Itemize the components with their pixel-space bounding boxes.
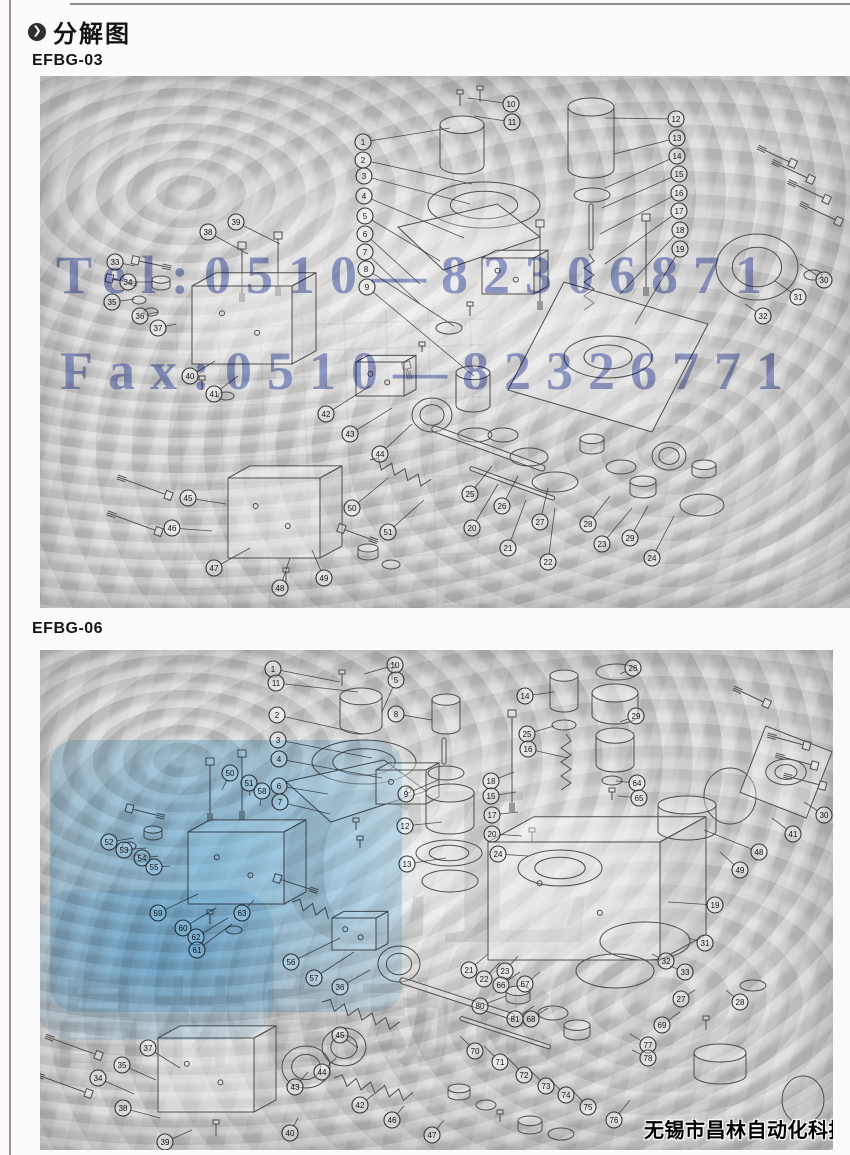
part-bolt [125,804,166,821]
svg-text:39: 39 [232,218,241,227]
part-ring [680,494,724,516]
callout-35: 35 [114,1057,156,1080]
svg-text:70: 70 [471,1047,480,1056]
svg-text:1: 1 [361,138,366,147]
part-bolt [732,684,772,708]
svg-text:64: 64 [633,779,642,788]
svg-text:68: 68 [527,1015,536,1024]
svg-text:13: 13 [673,134,682,143]
svg-text:43: 43 [291,1083,300,1092]
part-ring [552,720,576,730]
efbg-06-exploded-diagram: CL 昌林自动化 1112346710589121314251618151720… [40,650,833,1150]
callout-2: 2 [269,707,362,734]
svg-text:49: 49 [320,574,329,583]
svg-text:66: 66 [497,981,506,990]
callout-28: 28 [726,990,748,1010]
callout-73: 73 [530,1070,554,1094]
part-cyl [358,544,378,560]
svg-text:54: 54 [138,854,147,863]
company-name: 无锡市昌林自动化科技 [644,1114,833,1143]
page-title: 分解图 [53,14,131,49]
svg-text:42: 42 [322,410,331,419]
svg-text:48: 48 [755,848,764,857]
svg-text:32: 32 [662,957,671,966]
svg-text:58: 58 [258,787,267,796]
svg-text:7: 7 [278,798,283,807]
callout-26: 26 [620,660,641,676]
svg-text:22: 22 [544,558,553,567]
svg-text:71: 71 [496,1058,505,1067]
svg-text:22: 22 [480,975,489,984]
svg-text:33: 33 [681,968,690,977]
svg-text:45: 45 [184,494,193,503]
callout-18: 18 [483,772,514,789]
callout-12: 12 [605,111,684,127]
svg-text:11: 11 [272,679,281,688]
svg-text:4: 4 [362,192,367,201]
callout-36: 36 [332,970,370,995]
part-cyl [448,1084,470,1100]
svg-text:6: 6 [277,782,282,791]
svg-text:18: 18 [676,226,685,235]
callout-78: 78 [632,1050,656,1066]
part-shaft [442,738,446,764]
svg-text:80: 80 [476,1002,485,1011]
callout-69: 69 [654,1012,680,1033]
callout-10: 10 [468,96,519,112]
part-cyl [630,476,656,498]
svg-text:67: 67 [521,980,530,989]
part-ring [226,926,242,934]
part-screw [497,1110,503,1122]
callout-41: 41 [772,818,801,842]
callout-72: 72 [508,1058,532,1083]
model-label-efbg-06: EFBG-06 [32,620,103,638]
svg-text:73: 73 [542,1082,551,1091]
callout-33: 33 [670,964,693,980]
part-bolt [106,509,163,536]
part-cyl [550,670,578,712]
svg-text:50: 50 [226,769,235,778]
svg-text:16: 16 [675,189,684,198]
svg-text:12: 12 [401,822,410,831]
svg-text:43: 43 [346,430,355,439]
callout-74: 74 [550,1080,574,1103]
svg-text:23: 23 [598,540,607,549]
callout-10: 10 [364,657,403,674]
svg-text:46: 46 [388,1116,397,1125]
svg-text:48: 48 [276,584,285,593]
callout-2: 2 [355,152,472,184]
callout-38: 38 [115,1100,160,1118]
part-screw [457,90,463,106]
part-bolt [508,710,516,812]
callout-46: 46 [164,520,212,536]
part-ring [476,1100,496,1110]
part-screw [353,818,359,830]
svg-text:29: 29 [626,534,635,543]
svg-text:51: 51 [245,779,254,788]
svg-text:47: 47 [210,564,219,573]
svg-text:60: 60 [179,924,188,933]
part-cyl [596,728,634,772]
svg-text:30: 30 [820,276,829,285]
part-bolt [206,758,214,822]
svg-text:28: 28 [736,998,745,1007]
svg-text:37: 37 [154,324,163,333]
part-ring [382,560,400,569]
callout-67: 67 [517,972,540,992]
part-cyl [692,460,716,478]
svg-text:27: 27 [677,995,686,1004]
part-spring [320,997,399,1031]
part-bolt [40,1070,93,1098]
svg-text:20: 20 [488,830,497,839]
callout-49: 49 [720,852,748,878]
svg-text:77: 77 [644,1041,653,1050]
part-screw [213,1120,219,1136]
svg-text:45: 45 [336,1031,345,1040]
part-ring [574,188,610,202]
part-bolt [44,1032,103,1060]
svg-text:63: 63 [238,909,247,918]
part-box [158,1026,276,1112]
svg-text:23: 23 [501,967,510,976]
callout-32: 32 [745,304,771,324]
callout-39: 39 [157,1130,192,1150]
top-border-line [70,3,850,5]
svg-text:27: 27 [536,518,545,527]
svg-text:12: 12 [672,115,681,124]
svg-text:18: 18 [487,777,496,786]
svg-text:57: 57 [310,974,319,983]
svg-text:32: 32 [759,312,768,321]
callout-29: 29 [622,506,648,546]
part-ring [422,870,478,892]
callout-70: 70 [460,1036,483,1059]
callout-58: 58 [254,783,270,806]
callout-37: 37 [150,320,176,336]
part-screw [357,836,363,848]
callout-65: 65 [618,790,647,806]
part-spring [333,1073,413,1102]
svg-text:1: 1 [271,665,276,674]
svg-text:52: 52 [105,838,114,847]
part-spring [290,897,331,919]
svg-text:16: 16 [524,745,533,754]
callout-43: 43 [342,408,392,442]
part-shaft [431,425,546,472]
svg-text:37: 37 [144,1044,153,1053]
svg-text:25: 25 [523,730,532,739]
svg-text:15: 15 [487,792,496,801]
svg-text:62: 62 [192,933,201,942]
svg-text:26: 26 [498,502,507,511]
svg-text:76: 76 [610,1116,619,1125]
svg-text:36: 36 [336,983,345,992]
part-cyl [440,116,484,174]
part-cyl [144,826,162,840]
svg-text:56: 56 [287,958,296,967]
svg-text:15: 15 [675,170,684,179]
part-ring [740,980,766,991]
part-screw [703,1016,709,1030]
callout-24: 24 [644,516,674,566]
callout-17: 17 [484,807,518,823]
part-cyl [426,784,474,834]
svg-text:9: 9 [404,790,409,799]
svg-text:81: 81 [511,1015,520,1024]
svg-text:5: 5 [394,676,399,685]
svg-text:20: 20 [468,524,477,533]
svg-text:6: 6 [363,230,368,239]
svg-text:24: 24 [494,850,503,859]
callout-43: 43 [287,1072,308,1095]
part-cyl [340,688,382,734]
svg-text:10: 10 [507,100,516,109]
svg-text:5: 5 [363,212,368,221]
callout-40: 40 [282,1118,298,1141]
svg-text:14: 14 [673,152,682,161]
part-box [488,817,706,960]
watermark-tel: Tel:0510—82306871 [56,244,777,306]
callout-50: 50 [344,478,388,516]
callout-55: 55 [146,859,170,875]
callout-46: 46 [384,1106,404,1128]
svg-text:10: 10 [391,661,400,670]
part-spring [561,734,571,790]
svg-text:75: 75 [584,1103,593,1112]
svg-text:65: 65 [635,794,644,803]
svg-text:2: 2 [361,156,366,165]
callout-48: 48 [272,558,290,596]
part-cyl [568,98,614,178]
part-box [188,820,306,904]
callout-44: 44 [314,1058,336,1080]
svg-text:8: 8 [394,710,399,719]
svg-text:26: 26 [629,664,638,673]
part-cyl [432,694,460,734]
callout-75: 75 [572,1090,596,1115]
callout-14: 14 [517,688,554,704]
callout-76: 76 [606,1100,630,1128]
part-box [228,466,342,558]
part-cyl [580,434,604,454]
svg-text:50: 50 [348,504,357,513]
svg-text:53: 53 [120,846,129,855]
callout-71: 71 [484,1046,508,1070]
svg-text:3: 3 [362,172,367,181]
part-bolt [798,200,843,227]
svg-text:61: 61 [193,946,202,955]
part-ring [548,1128,574,1140]
svg-text:19: 19 [711,901,720,910]
callout-31: 31 [775,281,806,305]
svg-text:38: 38 [204,228,213,237]
svg-text:17: 17 [488,811,497,820]
svg-text:44: 44 [376,450,385,459]
callout-57: 57 [306,952,354,986]
svg-text:21: 21 [465,966,474,975]
svg-text:3: 3 [276,736,281,745]
part-ring [602,776,622,785]
efbg-03-exploded-diagram: 1234567891011121314151617181930313233343… [40,76,850,608]
callout-25: 25 [519,726,554,742]
callout-34: 34 [90,1070,134,1094]
svg-text:25: 25 [466,490,475,499]
svg-text:49: 49 [736,866,745,875]
svg-text:46: 46 [168,524,177,533]
callout-47: 47 [424,1120,444,1143]
svg-text:11: 11 [508,118,517,127]
callout-45: 45 [180,490,226,506]
svg-text:39: 39 [161,1138,170,1147]
svg-text:59: 59 [154,909,163,918]
part-ring [606,460,636,474]
callout-29: 29 [620,708,644,724]
part-screw [609,788,615,800]
callout-42: 42 [352,1094,374,1113]
svg-text:31: 31 [794,293,803,302]
svg-text:35: 35 [118,1061,127,1070]
part-bolt [756,143,797,168]
svg-text:72: 72 [520,1071,529,1080]
part-ring2 [416,840,482,866]
svg-text:44: 44 [318,1068,327,1077]
callout-77: 77 [630,1034,656,1053]
efbg-06-line-art: 1112346710589121314251618151720242629646… [40,650,833,1150]
svg-text:36: 36 [136,312,145,321]
svg-text:21: 21 [504,544,513,553]
callout-44: 44 [372,424,412,462]
svg-text:4: 4 [277,755,282,764]
part-bolt [116,473,173,500]
svg-text:47: 47 [428,1131,437,1140]
svg-text:38: 38 [119,1104,128,1113]
callout-51: 51 [380,500,424,540]
callout-39: 39 [228,214,280,244]
page-header: ❯ 分解图 [28,14,131,49]
svg-text:28: 28 [584,520,593,529]
part-cyl [694,1044,746,1084]
svg-text:31: 31 [701,939,710,948]
svg-text:14: 14 [521,692,530,701]
callout-13: 13 [399,856,446,872]
svg-text:29: 29 [632,712,641,721]
part-ring2 [652,442,686,470]
svg-text:13: 13 [403,860,412,869]
svg-text:30: 30 [820,811,829,820]
svg-text:78: 78 [644,1054,653,1063]
svg-text:34: 34 [94,1074,103,1083]
part-ring [538,1006,568,1020]
svg-text:51: 51 [384,528,393,537]
svg-text:17: 17 [675,207,684,216]
section-bullet-icon: ❯ [28,23,46,41]
svg-text:2: 2 [275,711,280,720]
callout-8: 8 [388,706,432,722]
callout-50: 50 [222,765,238,790]
callout-15: 15 [483,788,516,804]
part-box [332,911,388,950]
part-screw [339,670,345,686]
callout-56: 56 [283,938,340,970]
model-label-efbg-03: EFBG-03 [32,52,103,70]
callout-27: 27 [673,990,695,1007]
part-ring2 [378,946,420,982]
callout-16: 16 [520,741,568,758]
callout-11: 11 [268,675,358,692]
watermark-fax: Fax:0510—82326771 [60,340,798,402]
callout-28: 28 [580,496,610,532]
part-cyl [518,1116,542,1134]
svg-text:41: 41 [789,830,798,839]
callout-1: 1 [355,128,450,150]
svg-text:40: 40 [286,1129,295,1138]
part-ring [436,322,462,334]
part-cyl [564,1020,590,1040]
svg-text:74: 74 [562,1091,571,1100]
left-border-line [9,0,11,1155]
part-ring [532,472,578,492]
svg-text:69: 69 [658,1021,667,1030]
svg-text:24: 24 [648,554,657,563]
svg-text:55: 55 [150,863,159,872]
svg-text:42: 42 [356,1101,365,1110]
callout-30: 30 [800,264,832,288]
part-bolt [337,524,379,546]
